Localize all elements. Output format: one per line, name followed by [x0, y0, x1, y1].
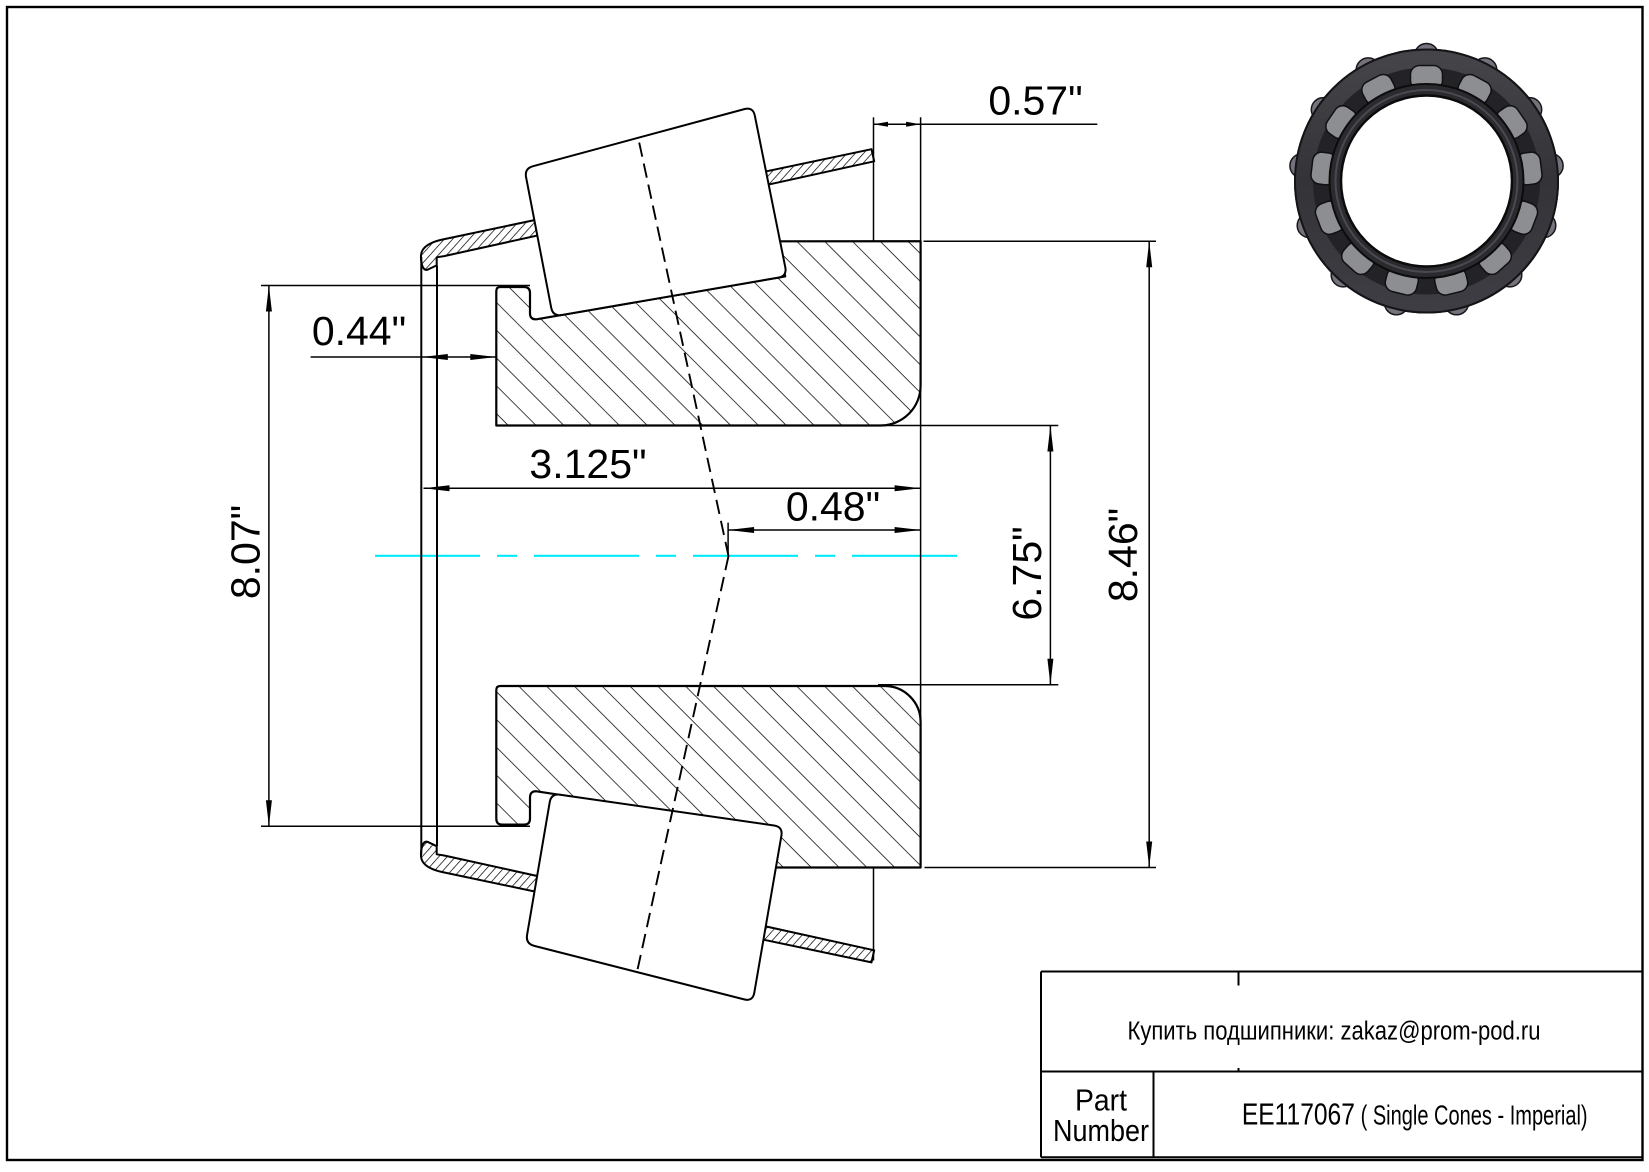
svg-text:( Single Cones - Imperial): ( Single Cones - Imperial)	[1361, 1100, 1588, 1131]
svg-text:Купить подшипники: zakaz@prom-: Купить подшипники: zakaz@prom-pod.ru	[1128, 1018, 1541, 1046]
svg-text:0.44": 0.44"	[312, 308, 406, 354]
svg-text:EE117067: EE117067	[1242, 1098, 1355, 1132]
svg-text:6.75": 6.75"	[1004, 526, 1050, 620]
svg-text:0.57": 0.57"	[988, 78, 1082, 124]
svg-text:0.48": 0.48"	[786, 484, 880, 530]
svg-text:8.07": 8.07"	[223, 505, 269, 599]
svg-text:8.46": 8.46"	[1100, 508, 1146, 602]
svg-text:3.125": 3.125"	[529, 441, 646, 487]
svg-text:Number: Number	[1053, 1113, 1149, 1148]
